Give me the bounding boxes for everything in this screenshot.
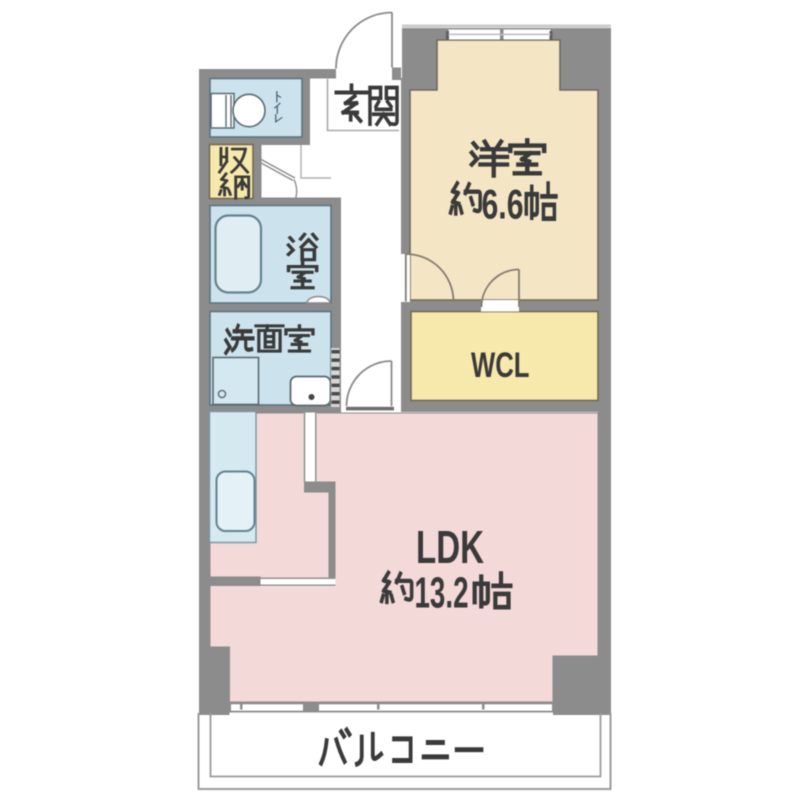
svg-text:6.6: 6.6	[482, 181, 524, 228]
svg-text:13.2: 13.2	[415, 569, 469, 618]
svg-text:WCL: WCL	[471, 346, 530, 385]
svg-text:LDK: LDK	[416, 521, 484, 573]
